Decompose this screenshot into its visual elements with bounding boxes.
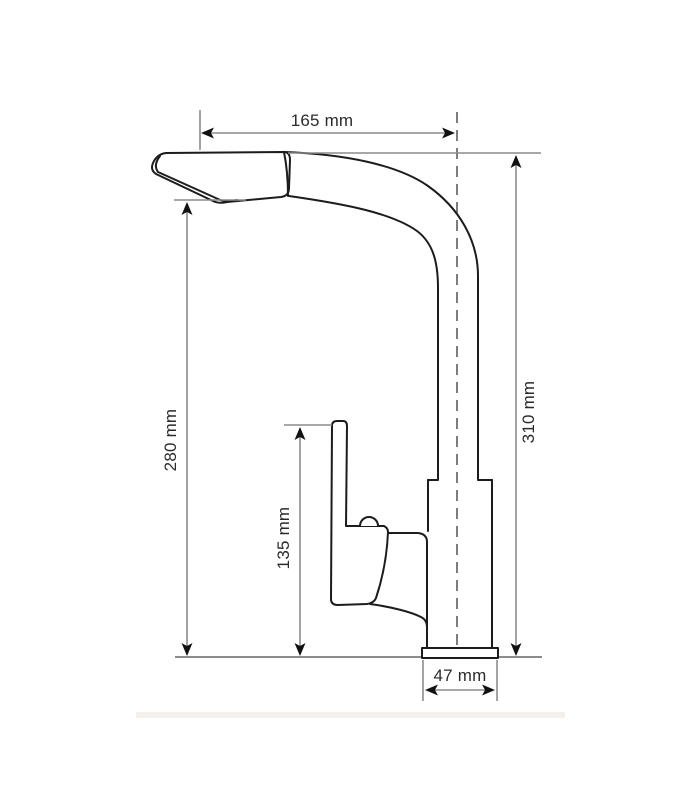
spout-tube-inner-edge: [289, 196, 438, 479]
faucet-dimension-diagram: 165 mm 310 mm 280 mm 135 mm: [0, 0, 700, 800]
dimension-spout-reach: 165 mm: [200, 110, 455, 150]
dimension-spout-tip-height: 280 mm: [161, 200, 246, 656]
dim-label-handle-height: 135 mm: [274, 507, 293, 570]
dimension-handle-height: 135 mm: [274, 425, 332, 656]
spout-tube-outer-edge: [284, 152, 478, 479]
faucet-outline: [152, 152, 498, 658]
body-handle-ledge: [389, 533, 427, 648]
page-divider-strip: [136, 712, 565, 718]
dim-label-spout-tip-height: 280 mm: [161, 409, 180, 472]
dim-label-spout-reach: 165 mm: [291, 111, 354, 130]
body-lower-curve: [370, 604, 427, 627]
base-plate: [422, 648, 498, 658]
dim-label-total-height: 310 mm: [519, 381, 538, 444]
dimension-base-width: 47 mm: [423, 660, 497, 701]
technical-drawing-canvas: 165 mm 310 mm 280 mm 135 mm: [0, 0, 700, 800]
cartridge-dome: [360, 517, 378, 526]
spout-head: [152, 152, 290, 203]
dim-label-base-width: 47 mm: [434, 666, 487, 685]
handle-lever: [331, 421, 388, 605]
